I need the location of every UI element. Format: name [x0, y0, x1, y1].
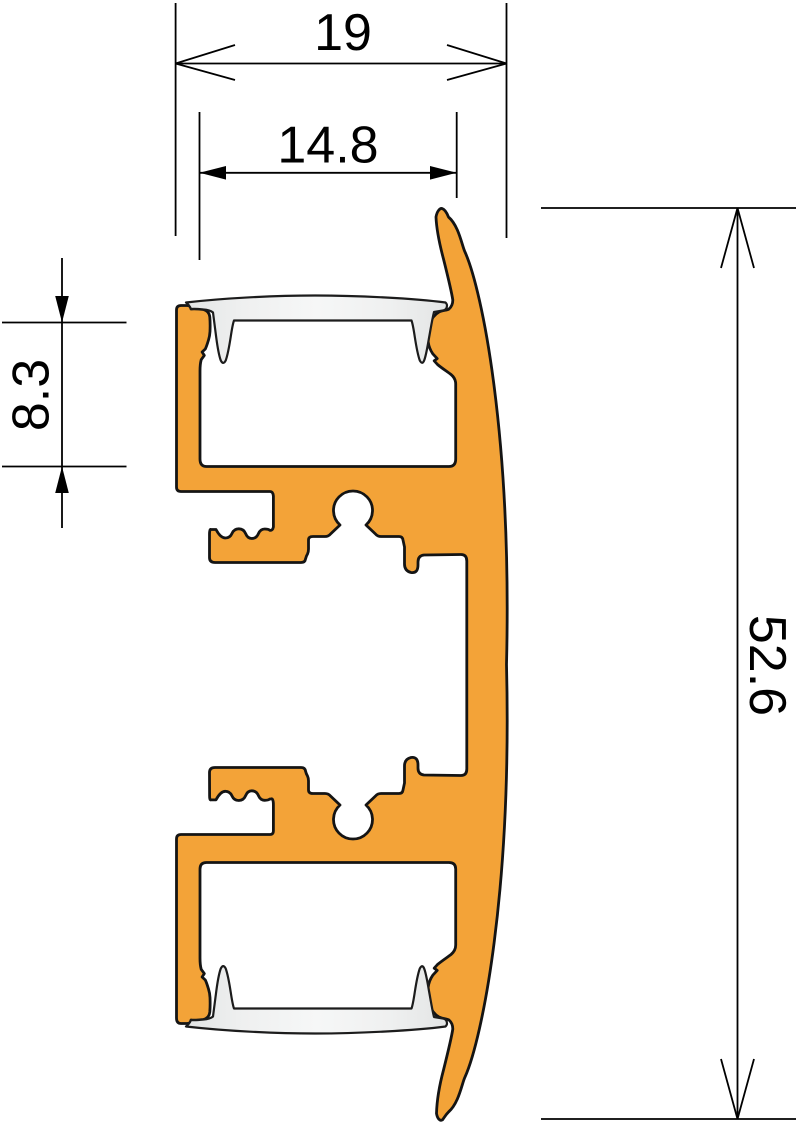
- svg-text:14.8: 14.8: [277, 117, 378, 175]
- svg-text:19: 19: [314, 4, 372, 62]
- svg-text:52.6: 52.6: [738, 615, 796, 716]
- svg-text:8.3: 8.3: [3, 359, 61, 431]
